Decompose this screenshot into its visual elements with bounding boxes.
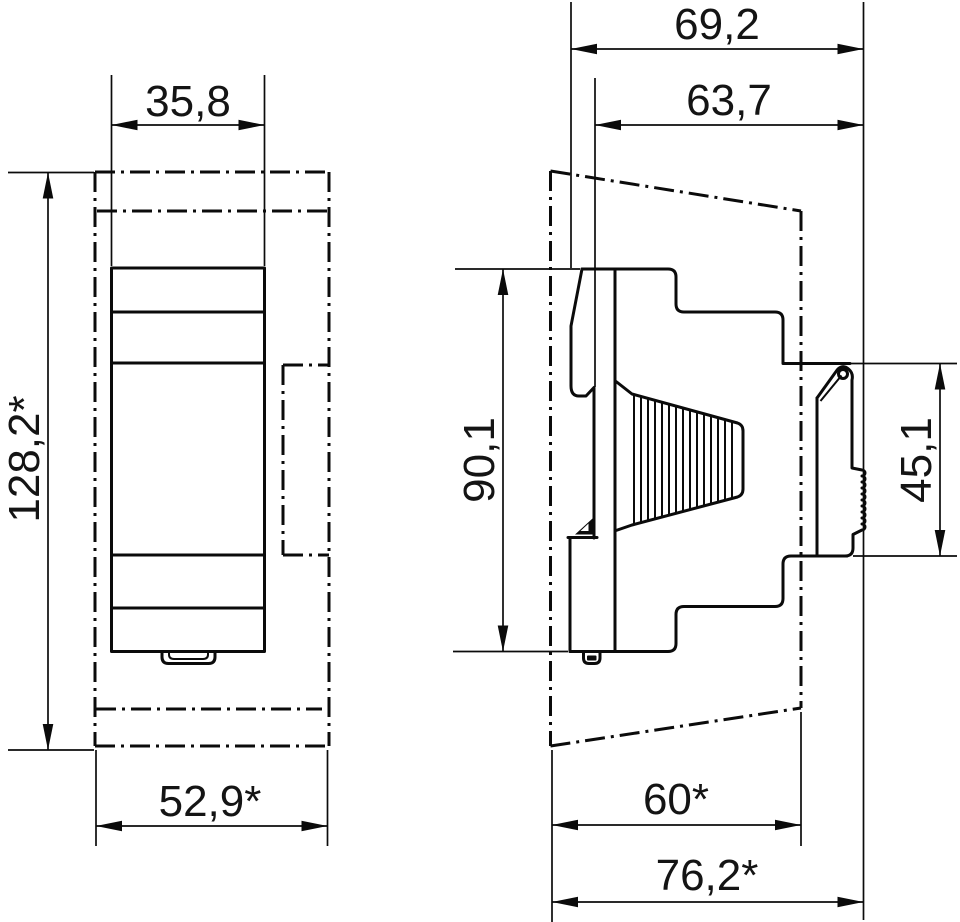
dimension-label: 90,1 — [455, 417, 504, 503]
dimension-label: 63,7 — [686, 76, 772, 125]
dimension-label: 52,9* — [159, 777, 262, 826]
dimension-label: 76,2* — [656, 851, 759, 900]
dimension-label: 45,1 — [892, 417, 941, 503]
drawing-stage: 35,8 128,2* 52,9* — [0, 0, 960, 922]
side-release-tab-inner — [587, 656, 597, 661]
dimension-label: 35,8 — [145, 77, 231, 126]
dimension-label: 128,2* — [0, 395, 49, 522]
dimension-label: 69,2 — [674, 0, 760, 49]
technical-drawing: 35,8 128,2* 52,9* — [0, 0, 960, 922]
dimension-label: 60* — [643, 775, 709, 824]
